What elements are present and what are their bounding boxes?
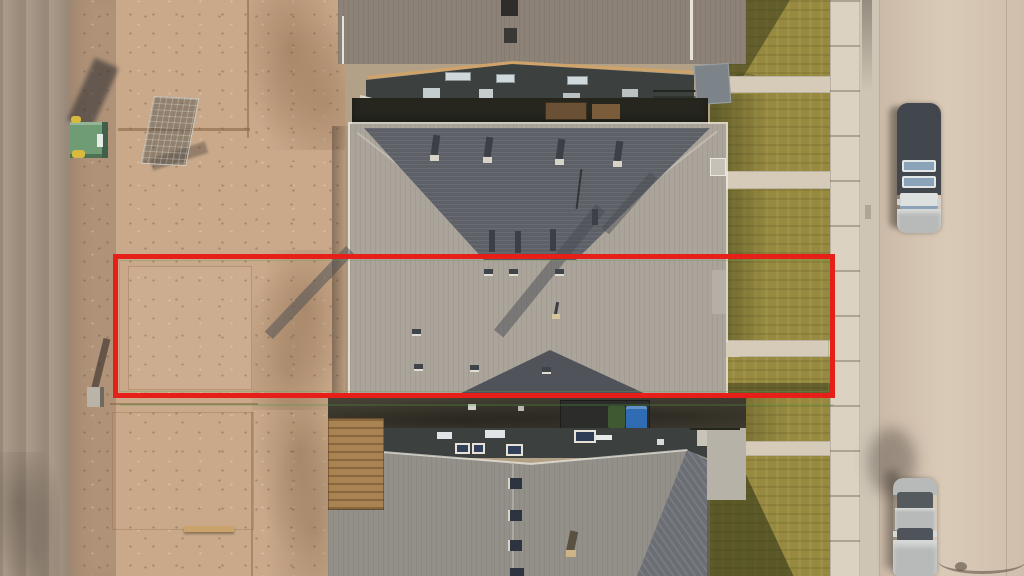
house-top-window-2: [496, 74, 515, 83]
house-top-roof-left-trim: [342, 16, 344, 64]
suv-sunroof: [902, 176, 936, 188]
sedan-roof: [895, 508, 935, 530]
streetlight-shadow: [938, 548, 1024, 574]
roof-vent: [515, 231, 521, 253]
green-bin: [608, 406, 625, 428]
suv-rear-glass: [902, 160, 936, 172]
house-bottom-window-1: [437, 432, 452, 439]
alley-stored-items-2: [592, 104, 620, 119]
sedan-mirror-left: [893, 531, 897, 537]
suv-hood: [897, 209, 941, 233]
house-top-window-7: [622, 89, 638, 97]
skylight-3: [506, 444, 523, 456]
dumpster-yellow-corner-bottom: [72, 150, 85, 158]
skylight-4: [574, 430, 596, 443]
roof-vent: [510, 568, 524, 576]
sedan-hood: [893, 540, 937, 576]
streetlight-shadow-head: [955, 562, 967, 571]
chimney-2: [504, 28, 517, 43]
dumpster-yellow-corner-top: [71, 116, 81, 123]
roof-vent-cap: [613, 161, 622, 167]
suv-mirror-left: [897, 199, 901, 205]
curb-stain-mid: [865, 205, 871, 219]
blue-recycling-bin: [626, 406, 647, 429]
roof-vent-cap: [483, 157, 492, 163]
parked-suv: [897, 103, 941, 233]
suv-mirror-right: [937, 199, 941, 205]
roof-vent-cap: [555, 159, 564, 165]
house-top-window-4: [423, 88, 440, 98]
wood-deck: [328, 418, 384, 510]
dirt-road-stain: [0, 452, 60, 576]
bottom-patio: [707, 428, 746, 500]
parked-sedan: [893, 478, 937, 576]
middle-roof-bump: [710, 158, 726, 176]
skylight-1: [455, 443, 470, 454]
roof-vent: [489, 230, 495, 252]
skylight-2: [472, 443, 485, 454]
dumpster-label: [97, 134, 103, 147]
house-top-window-1: [445, 72, 471, 81]
roof-vent: [592, 209, 598, 225]
house-top-roof-right-trim: [690, 0, 693, 60]
lot-line-vertical-lower: [251, 412, 253, 576]
lumber-piece: [184, 526, 234, 532]
graded-pad-outline-lower: [112, 412, 254, 530]
bottom-patio-rail: [690, 428, 740, 430]
house-bottom-window-2: [485, 430, 505, 438]
house-bottom-window-4: [657, 439, 664, 445]
sedan-mirror-right: [933, 531, 937, 537]
roof-vent: [508, 510, 522, 521]
house-top-window-5: [479, 89, 493, 98]
roof-pipe-item-base: [566, 550, 576, 557]
walkway-2: [720, 171, 832, 189]
house-top: [338, 0, 746, 112]
house-bottom: [328, 398, 746, 576]
roof-vent: [508, 540, 522, 551]
house-top-window-3: [567, 76, 588, 85]
alley-stored-items: [545, 102, 587, 120]
suv-windshield: [900, 193, 938, 209]
house-top-roof: [338, 0, 746, 64]
street-seam: [1006, 0, 1007, 576]
lot-highlight-rectangle: [113, 254, 835, 398]
roof-vent: [508, 478, 522, 489]
roof-vent-cap: [430, 155, 439, 161]
house-bottom-window-3: [596, 435, 612, 440]
roof-vent: [550, 229, 556, 251]
aerial-photo: [0, 0, 1024, 576]
chimney: [501, 0, 518, 16]
marker-post-box: [87, 387, 104, 407]
lot-line-vertical: [247, 0, 249, 138]
backyard-item-2: [518, 406, 524, 411]
compression-artifact-line: [120, 404, 834, 406]
curb-stain-top: [862, 0, 872, 92]
